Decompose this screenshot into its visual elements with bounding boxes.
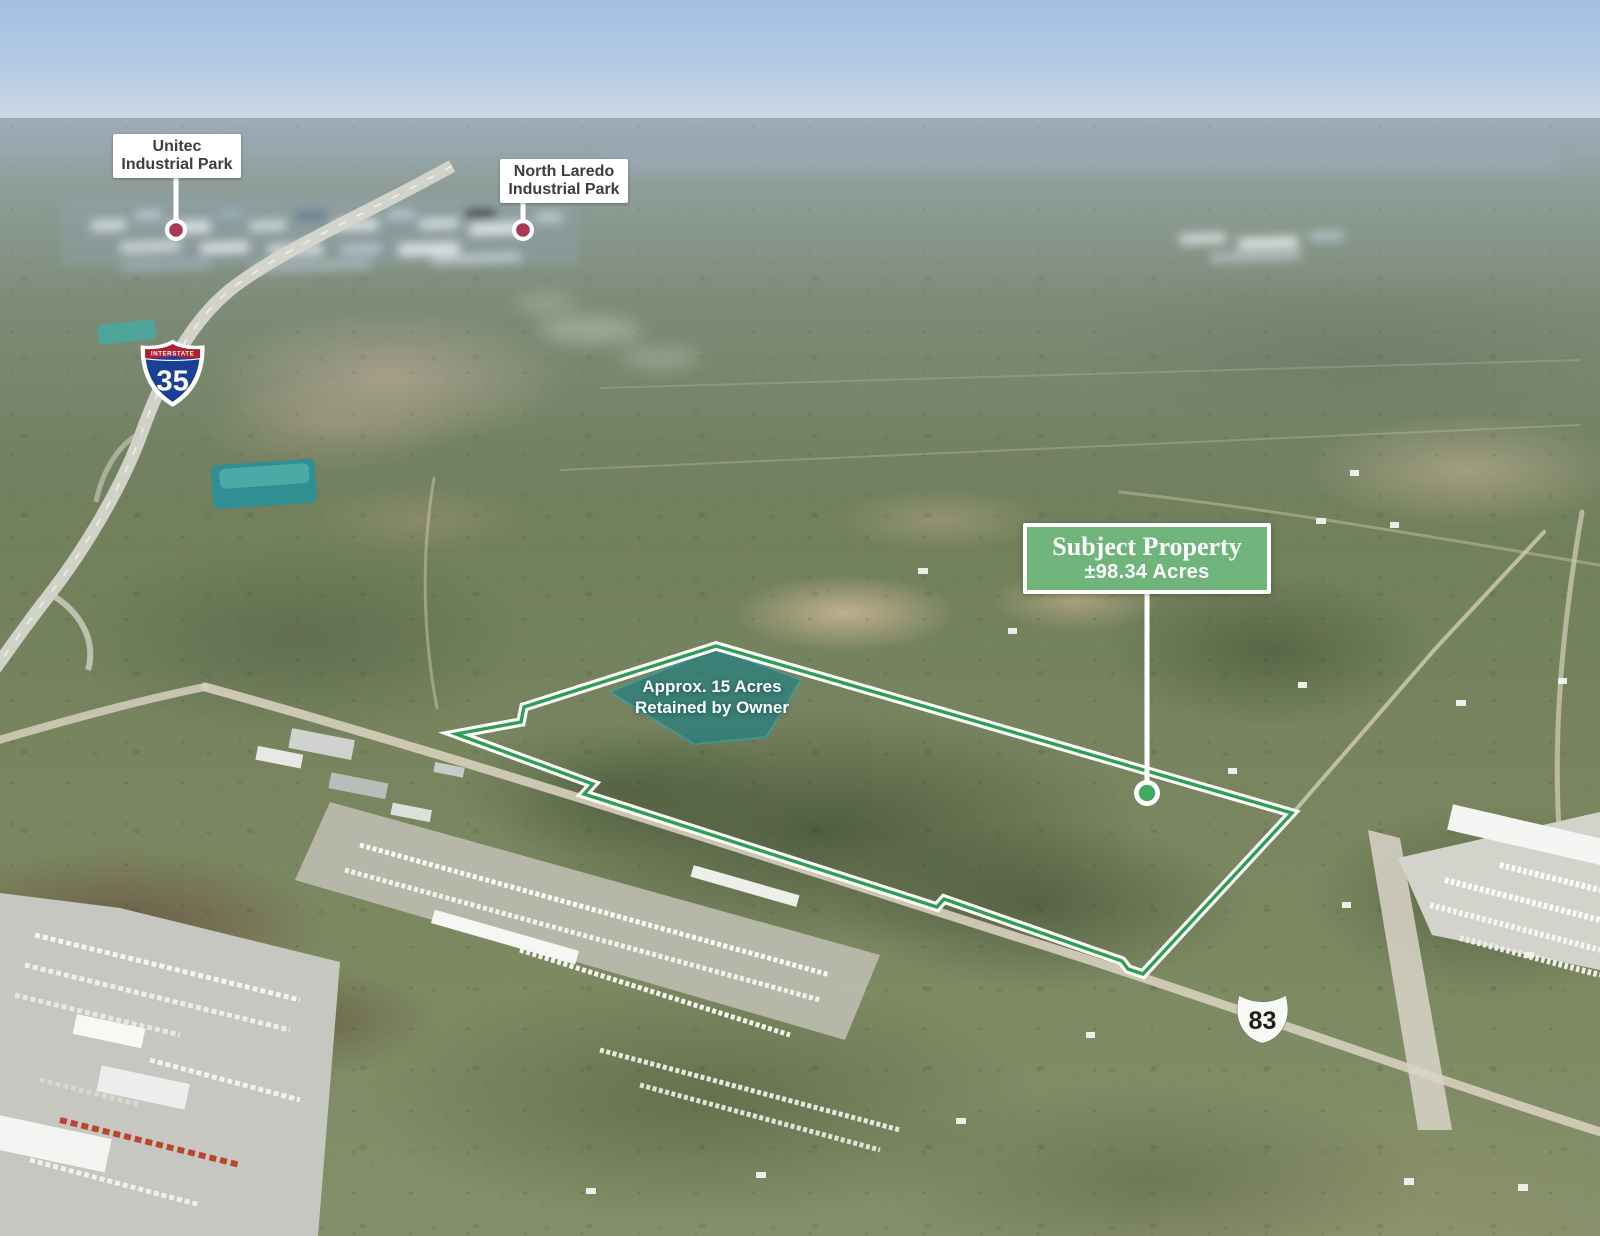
north-laredo-marker-dot (512, 219, 534, 241)
subject-marker-dot (1134, 780, 1160, 806)
subject-property-acreage: ±98.34 Acres (1084, 560, 1209, 584)
unitec-marker-dot (165, 219, 187, 241)
interstate-35-shield-icon: INTERSTATE 35 (141, 340, 205, 407)
retained-area-line1: Approx. 15 Acres (635, 676, 789, 697)
north-laredo-label-line1: North Laredo (506, 163, 622, 181)
unitec-label-line2: Industrial Park (119, 156, 235, 174)
property-boundary-casing (456, 646, 1292, 974)
retained-area-line2: Retained by Owner (635, 697, 789, 718)
unitec-label: Unitec Industrial Park (113, 134, 241, 178)
aerial-property-map: INTERSTATE 35 83 Unitec Industrial Park … (0, 0, 1600, 1236)
unitec-label-line1: Unitec (119, 138, 235, 156)
us-83-shield-icon: 83 (1237, 995, 1288, 1043)
north-laredo-label: North Laredo Industrial Park (500, 159, 628, 203)
retained-area-label: Approx. 15 Acres Retained by Owner (635, 676, 789, 719)
subject-property-title: Subject Property (1052, 533, 1241, 560)
us-route-number: 83 (1249, 1007, 1277, 1035)
north-laredo-label-line2: Industrial Park (506, 181, 622, 199)
subject-property-callout: Subject Property ±98.34 Acres (1023, 523, 1271, 594)
annotation-overlay: INTERSTATE 35 83 (0, 0, 1600, 1236)
interstate-caption: INTERSTATE (151, 350, 194, 357)
interstate-number: 35 (156, 366, 188, 398)
